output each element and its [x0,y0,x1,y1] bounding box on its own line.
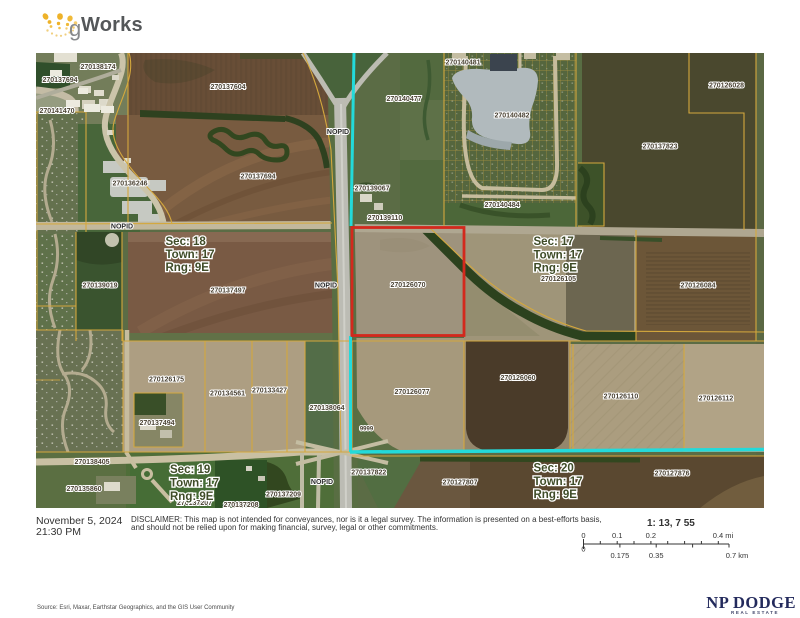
svg-text:270139067: 270139067 [354,186,389,193]
svg-text:270137694: 270137694 [240,174,275,181]
svg-text:Rng: 9E: Rng: 9E [170,491,214,503]
svg-text:Rng: 9E: Rng: 9E [534,489,578,501]
svg-text:Rng: 9E: Rng: 9E [166,262,210,274]
svg-text:270126175: 270126175 [149,377,184,384]
svg-text:270137494: 270137494 [139,420,174,427]
svg-text:0.35: 0.35 [649,551,664,560]
svg-text:270126070: 270126070 [390,282,425,289]
svg-text:Town: 17: Town: 17 [534,250,583,262]
svg-text:270126077: 270126077 [394,389,429,396]
svg-text:270126028: 270126028 [709,83,744,90]
svg-text:270137823: 270137823 [642,144,677,151]
svg-text:0.4 mi: 0.4 mi [713,531,734,540]
svg-text:270133427: 270133427 [252,388,287,395]
svg-text:0: 0 [581,545,585,554]
svg-text:270126084: 270126084 [680,283,715,290]
svg-text:NOPID: NOPID [311,479,333,486]
svg-text:270140477: 270140477 [386,96,421,103]
svg-text:NOPID: NOPID [327,129,349,136]
svg-text:270140482: 270140482 [494,113,529,120]
svg-text:270134561: 270134561 [210,391,245,398]
svg-text:Sec: 20: Sec: 20 [534,463,574,475]
svg-text:270126110: 270126110 [604,394,639,401]
svg-text:270138174: 270138174 [80,64,115,71]
svg-text:270135860: 270135860 [66,486,101,493]
svg-text:Works: Works [81,14,143,36]
svg-text:270127876: 270127876 [654,471,689,478]
svg-text:270126105: 270126105 [541,276,576,283]
svg-text:0.175: 0.175 [611,551,630,560]
svg-text:270138405: 270138405 [74,459,109,466]
svg-text:270137694: 270137694 [42,77,77,84]
svg-text:270138064: 270138064 [309,405,344,412]
svg-text:Sec: 18: Sec: 18 [166,236,207,248]
svg-text:270136246: 270136246 [112,181,147,188]
svg-text:270139019: 270139019 [82,283,117,290]
svg-text:g: g [69,16,81,41]
svg-text:NOPID: NOPID [111,224,133,231]
svg-text:0.1: 0.1 [612,531,622,540]
svg-text:Sec: 17: Sec: 17 [534,236,574,248]
svg-text:270126112: 270126112 [699,396,734,403]
svg-text:270137497: 270137497 [210,288,245,295]
svg-text:0.2: 0.2 [646,531,656,540]
svg-text:Rng: 9E: Rng: 9E [534,263,578,275]
svg-text:270137208: 270137208 [223,502,258,508]
svg-text:9999: 9999 [360,427,374,433]
svg-text:Sec: 19: Sec: 19 [170,464,210,476]
svg-text:270139110: 270139110 [368,215,403,222]
svg-text:0.7 km: 0.7 km [726,551,749,560]
svg-text:0: 0 [581,531,585,540]
svg-text:270140481: 270140481 [445,60,480,67]
svg-text:270126060: 270126060 [500,375,535,382]
svg-text:Town: 17: Town: 17 [170,478,219,490]
svg-text:Town: 17: Town: 17 [534,476,583,488]
svg-text:270137822: 270137822 [351,470,386,477]
svg-text:270140484: 270140484 [484,202,519,209]
svg-text:270137604: 270137604 [210,84,245,91]
svg-text:270127807: 270127807 [442,480,477,487]
svg-text:NOPID: NOPID [315,283,337,290]
svg-text:Town: 17: Town: 17 [166,249,215,261]
svg-text:270141470: 270141470 [39,108,74,115]
svg-text:270137209: 270137209 [266,492,301,499]
